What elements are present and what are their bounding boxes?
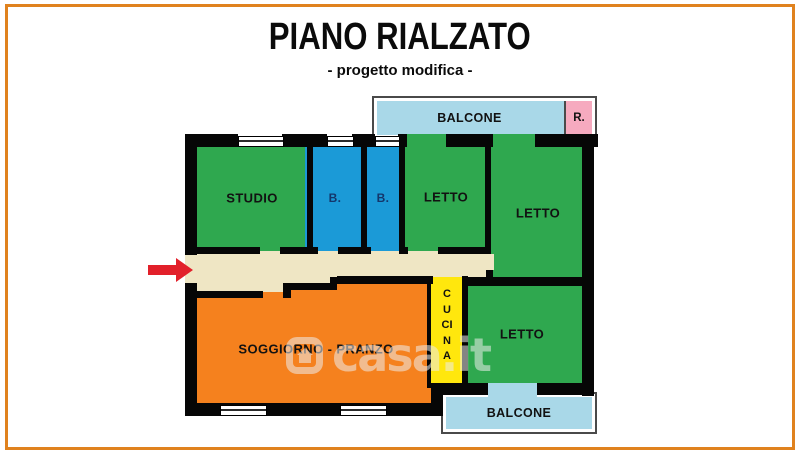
- wall: [338, 247, 371, 254]
- wall: [399, 140, 405, 254]
- wall: [361, 140, 367, 254]
- window: [340, 405, 387, 416]
- page-subtitle: - progetto modifica -: [0, 62, 800, 79]
- bath-1-label: B.: [329, 191, 342, 205]
- house-body-icon: [299, 355, 311, 363]
- wall: [337, 276, 433, 284]
- wall: [193, 247, 260, 254]
- floorplan-page: PIANO RIALZATO - progetto modifica - BAL…: [0, 0, 800, 457]
- wall: [282, 134, 327, 147]
- wall: [307, 140, 313, 254]
- bath-2-label: B.: [377, 191, 390, 205]
- house-roof-icon: [297, 348, 313, 355]
- letto-3-label: LETTO: [500, 327, 544, 342]
- wall: [438, 247, 487, 254]
- wall: [582, 134, 594, 396]
- wall: [485, 140, 491, 254]
- watermark: casa.it: [286, 328, 490, 382]
- watermark-text: casa.it: [332, 328, 490, 382]
- page-title-text: PIANO RIALZATO: [269, 16, 531, 59]
- window: [238, 136, 284, 147]
- door-opening-balcony-letto2: [493, 134, 535, 147]
- wall: [283, 283, 291, 298]
- entrance-arrow-icon: [148, 265, 177, 275]
- door-opening-balcony-letto3: [488, 383, 537, 397]
- entrance-arrow-head-icon: [176, 258, 193, 282]
- wall: [330, 277, 337, 290]
- wall: [468, 277, 588, 286]
- door-opening-corridor-letto2: [482, 254, 494, 270]
- wall: [280, 247, 318, 254]
- window: [220, 405, 267, 416]
- window: [375, 136, 400, 147]
- balcony-bottom: BALCONE: [441, 392, 597, 434]
- casa-it-logo-icon: [286, 337, 323, 374]
- studio-label: STUDIO: [226, 191, 278, 206]
- balcony-bottom-label: BALCONE: [487, 406, 552, 420]
- door-opening-balcony-letto1: [407, 134, 446, 147]
- wall: [537, 383, 588, 395]
- storage-room-r: R.: [564, 101, 592, 135]
- wall: [431, 383, 443, 416]
- letto-1-label: LETTO: [424, 190, 468, 205]
- balcony-top-label: BALCONE: [437, 111, 532, 125]
- wall: [185, 134, 197, 255]
- wall: [399, 247, 408, 254]
- letto-2-label: LETTO: [516, 206, 560, 221]
- wall: [185, 283, 197, 416]
- page-title: PIANO RIALZATO: [0, 16, 800, 59]
- window: [327, 136, 354, 147]
- wall: [193, 291, 263, 298]
